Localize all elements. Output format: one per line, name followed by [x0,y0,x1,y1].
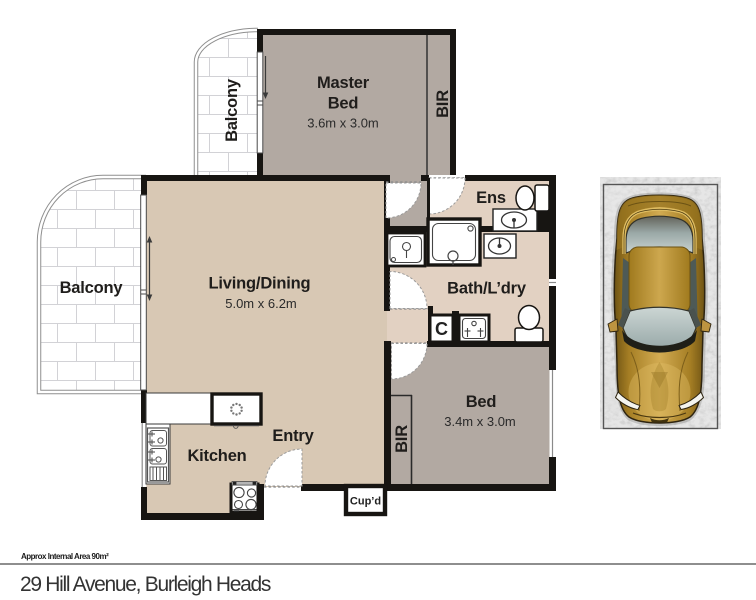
svg-text:C: C [435,319,448,339]
svg-text:Approx Internal Area 90m²: Approx Internal Area 90m² [21,552,109,561]
svg-text:Balcony: Balcony [60,279,124,297]
svg-text:Bath/L’dry: Bath/L’dry [447,280,527,298]
svg-text:Cup’d: Cup’d [350,496,381,508]
svg-text:29 Hill Avenue, Burleigh Heads: 29 Hill Avenue, Burleigh Heads [20,573,271,596]
svg-text:BIR: BIR [434,90,452,118]
svg-text:3.6m x 3.0m: 3.6m x 3.0m [307,116,379,131]
svg-text:Entry: Entry [272,427,314,445]
svg-text:Ens: Ens [476,189,506,207]
svg-text:Living/Dining: Living/Dining [209,275,311,293]
svg-text:Bed: Bed [328,95,359,113]
svg-text:Bed: Bed [466,393,497,411]
svg-text:Balcony: Balcony [223,78,241,142]
svg-text:BIR: BIR [393,425,411,453]
svg-text:Master: Master [317,74,370,92]
svg-text:3.4m x 3.0m: 3.4m x 3.0m [444,414,516,429]
svg-text:Kitchen: Kitchen [187,447,246,465]
svg-text:5.0m x 6.2m: 5.0m x 6.2m [225,296,297,311]
